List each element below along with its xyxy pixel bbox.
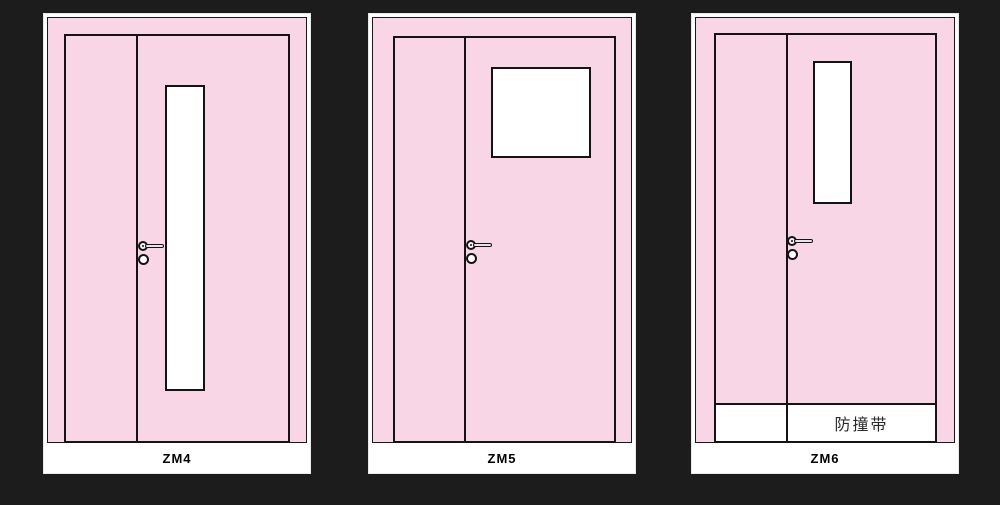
- lock-cylinder: [787, 249, 798, 260]
- leaf-divider-line: [464, 36, 466, 443]
- door-label: ZM4: [44, 443, 310, 473]
- door-label: ZM5: [369, 443, 635, 473]
- door-figure-zm6: 防撞带 ZM6: [692, 14, 958, 473]
- handle-lever: [473, 243, 492, 247]
- lock-cylinder: [138, 254, 149, 265]
- anti-collision-strip: 防撞带: [716, 403, 935, 441]
- handle-lever: [794, 239, 813, 243]
- lock-cylinder: [466, 253, 477, 264]
- vision-panel-window: [491, 67, 591, 158]
- handle-lever: [145, 244, 164, 248]
- leaf-divider-line: [136, 34, 138, 443]
- door-figure-zm5: ZM5: [369, 14, 635, 473]
- drawing-canvas: ZM4 ZM5 防撞带 ZM6: [0, 0, 1000, 505]
- vision-panel-window: [813, 61, 852, 204]
- vision-panel-window: [165, 85, 205, 391]
- door-figure-zm4: ZM4: [44, 14, 310, 473]
- anti-collision-strip-label: 防撞带: [788, 405, 935, 441]
- door-label: ZM6: [692, 443, 958, 473]
